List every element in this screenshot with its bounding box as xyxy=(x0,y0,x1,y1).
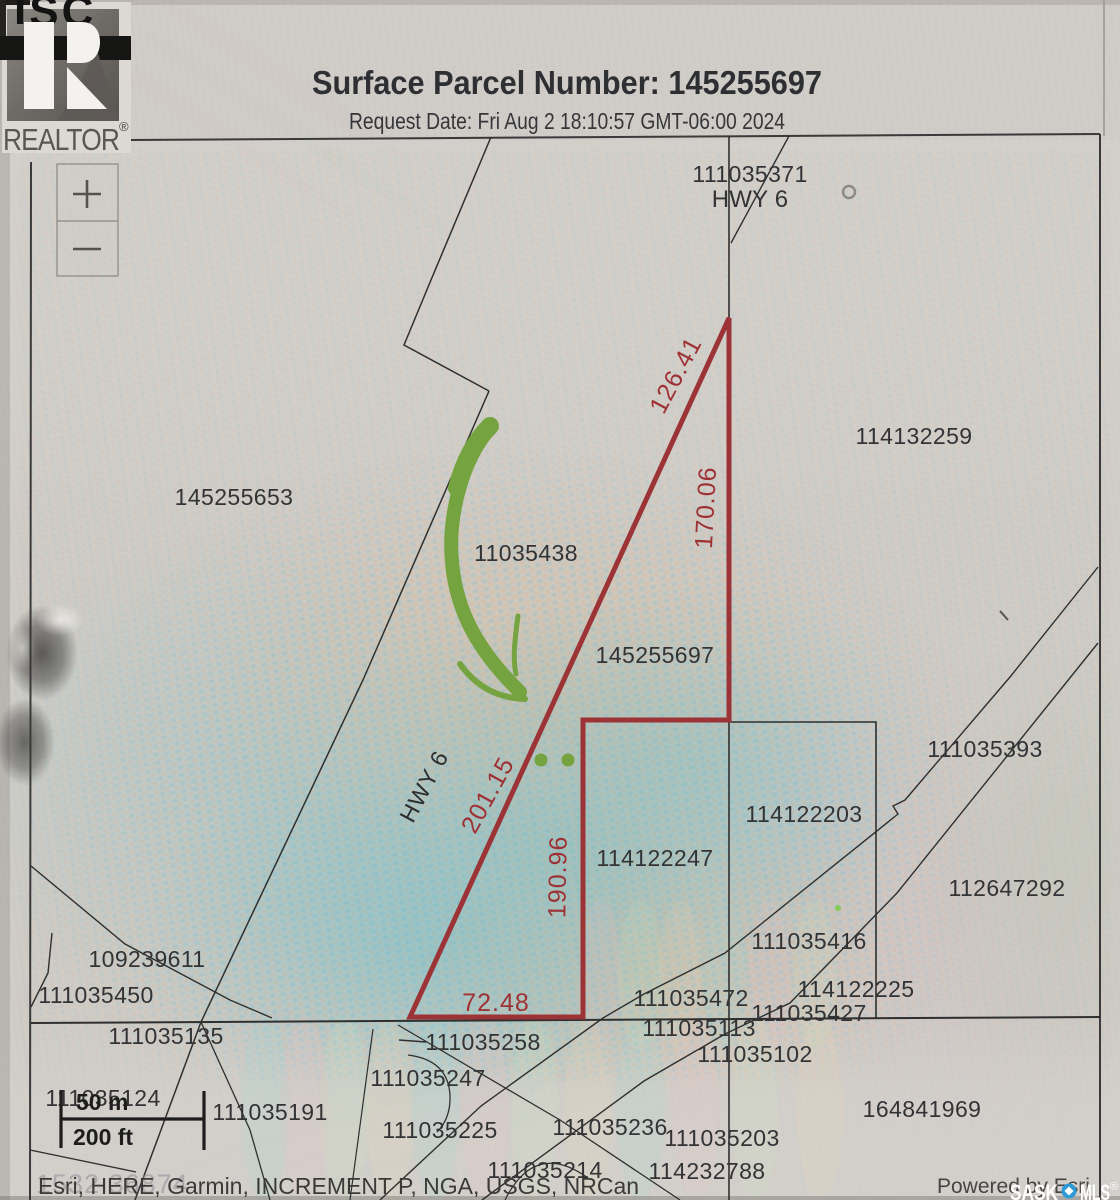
svg-text:164841969: 164841969 xyxy=(863,1096,982,1122)
svg-text:®: ® xyxy=(1110,1181,1118,1193)
svg-text:111035225: 111035225 xyxy=(382,1117,497,1143)
svg-text:HWY 6: HWY 6 xyxy=(712,186,789,213)
svg-text:111035191: 111035191 xyxy=(212,1099,327,1125)
svg-text:®: ® xyxy=(119,119,129,134)
svg-text:111035371: 111035371 xyxy=(692,161,807,187)
svg-text:MLS: MLS xyxy=(1080,1180,1110,1200)
svg-text:114232788: 114232788 xyxy=(648,1158,765,1184)
svg-text:112647292: 112647292 xyxy=(948,875,1065,901)
svg-text:Esri, HERE, Garmin, INCREMENT: Esri, HERE, Garmin, INCREMENT P, NGA, US… xyxy=(38,1173,639,1199)
svg-text:111035393: 111035393 xyxy=(927,736,1042,762)
svg-text:111035427: 111035427 xyxy=(751,1000,866,1026)
svg-text:11035438: 11035438 xyxy=(474,540,578,566)
svg-text:111035236: 111035236 xyxy=(552,1114,667,1140)
svg-text:114122247: 114122247 xyxy=(596,845,713,871)
svg-text:111035113: 111035113 xyxy=(642,1015,756,1041)
svg-text:190.96: 190.96 xyxy=(543,835,572,918)
svg-text:111035450: 111035450 xyxy=(38,982,153,1008)
svg-text:114132259: 114132259 xyxy=(855,423,972,449)
svg-text:111035247: 111035247 xyxy=(370,1065,485,1091)
svg-text:SASK: SASK xyxy=(1010,1180,1058,1200)
svg-text:REALTOR: REALTOR xyxy=(3,122,119,157)
svg-text:109239611: 109239611 xyxy=(88,946,205,972)
svg-text:111035135: 111035135 xyxy=(108,1023,223,1049)
svg-text:114122203: 114122203 xyxy=(745,801,862,827)
svg-text:50 m: 50 m xyxy=(76,1089,128,1115)
svg-text:111035416: 111035416 xyxy=(751,928,866,954)
svg-text:111035102: 111035102 xyxy=(697,1041,812,1067)
svg-text:114122225: 114122225 xyxy=(797,976,914,1002)
svg-text:72.48: 72.48 xyxy=(462,989,530,1017)
svg-text:Request Date: Fri Aug 2 18:10:: Request Date: Fri Aug 2 18:10:57 GMT-06:… xyxy=(349,108,785,134)
svg-text:111035203: 111035203 xyxy=(664,1125,779,1151)
svg-text:145255697: 145255697 xyxy=(596,642,715,668)
svg-text:200 ft: 200 ft xyxy=(73,1124,133,1150)
svg-text:145255653: 145255653 xyxy=(175,484,294,510)
svg-text:Surface Parcel Number: 1452556: Surface Parcel Number: 145255697 xyxy=(312,64,822,101)
svg-text:170.06: 170.06 xyxy=(690,466,722,550)
svg-text:111035258: 111035258 xyxy=(425,1029,540,1055)
svg-text:111035472: 111035472 xyxy=(633,985,748,1011)
